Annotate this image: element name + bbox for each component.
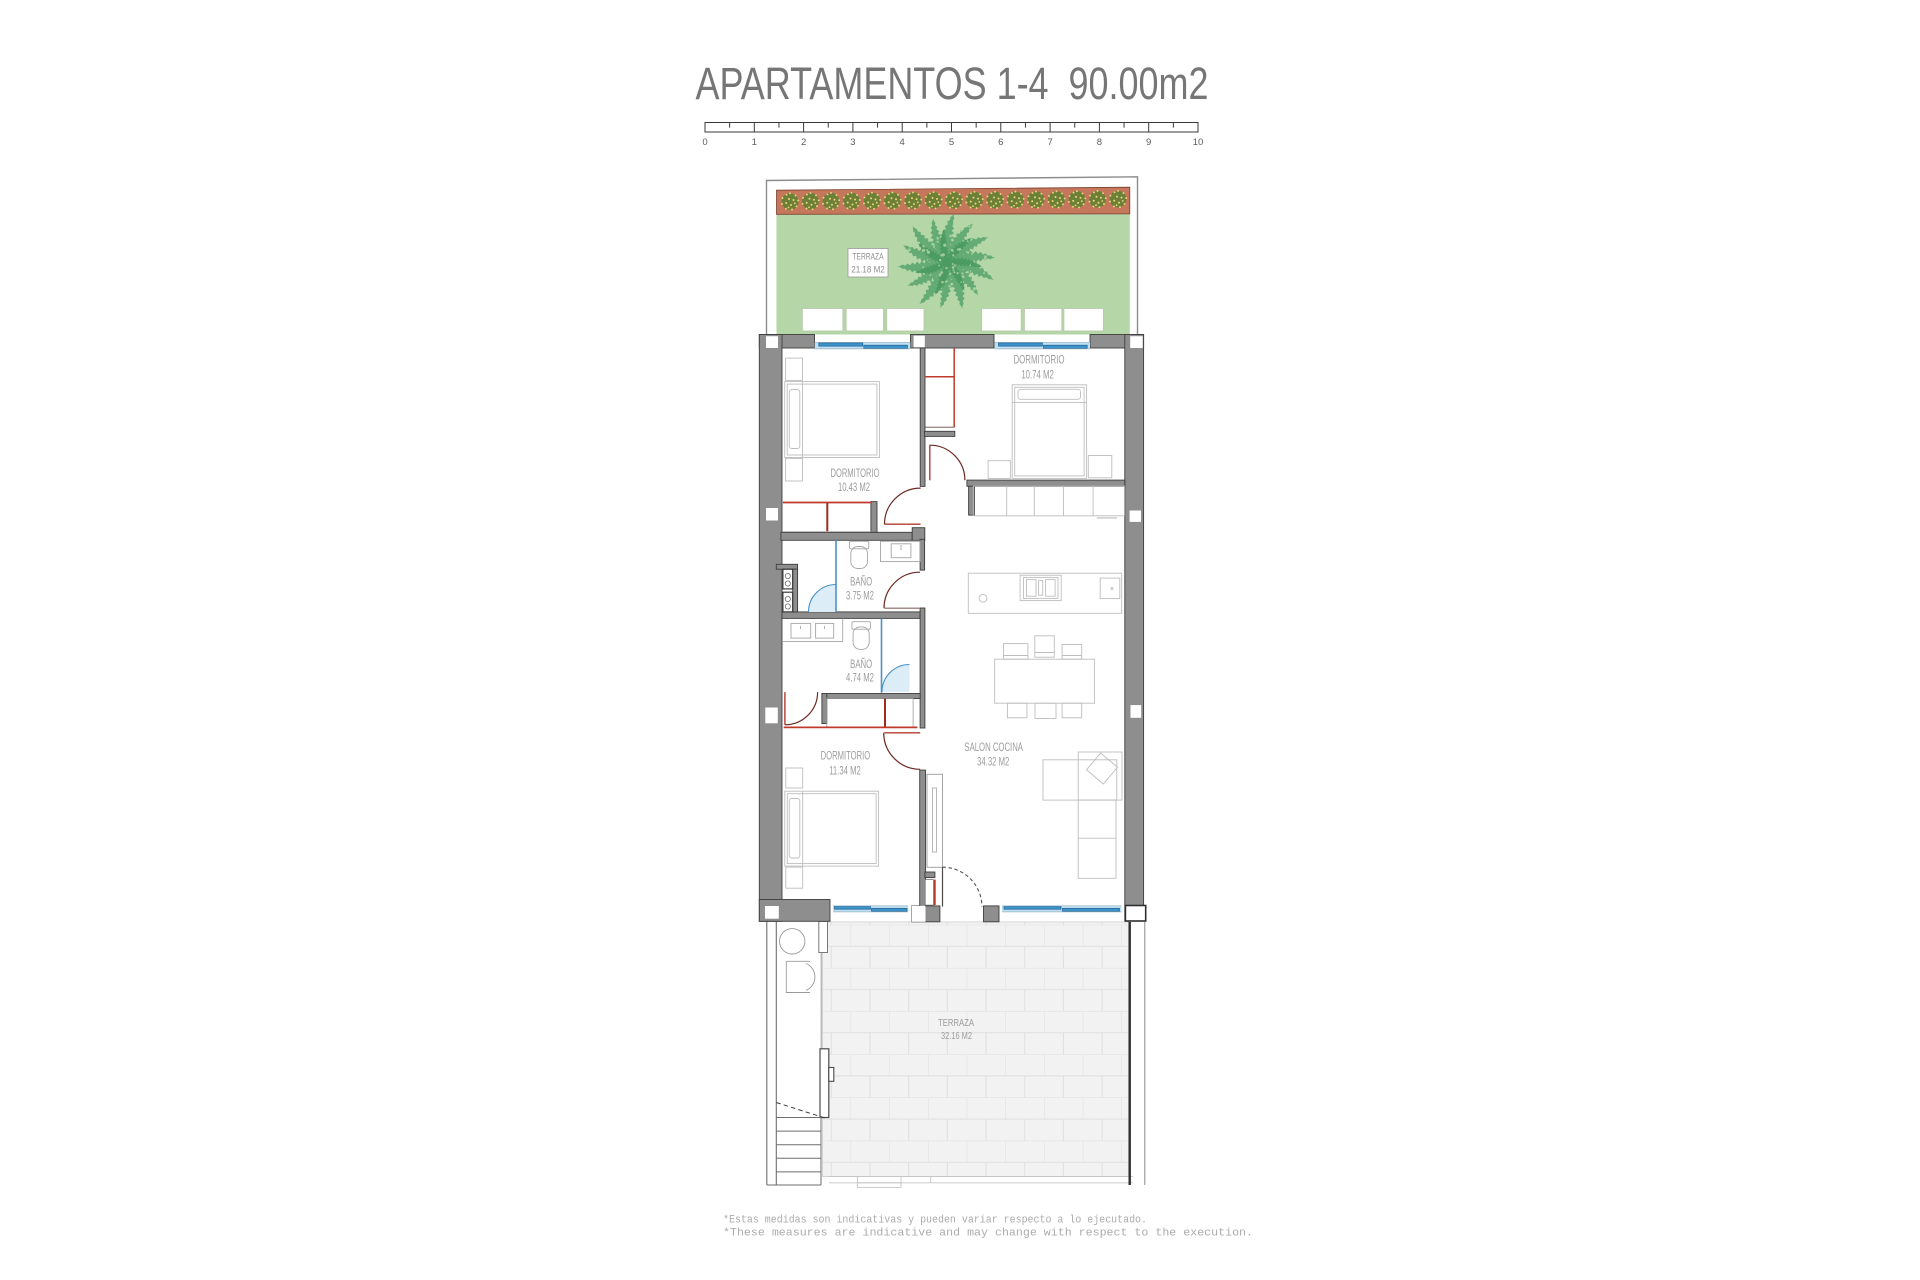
svg-text:SALON COCINA: SALON COCINA (964, 742, 1023, 754)
svg-text:9: 9 (1146, 137, 1151, 148)
svg-text:7: 7 (1047, 137, 1052, 148)
svg-text:3: 3 (850, 137, 855, 148)
svg-text:*These measures are indicative: *These measures are indicative and may c… (723, 1228, 1253, 1240)
svg-text:4.74 M2: 4.74 M2 (846, 673, 874, 685)
svg-text:3.75 M2: 3.75 M2 (846, 591, 874, 603)
svg-text:21.18 M2: 21.18 M2 (851, 265, 885, 276)
svg-text:1: 1 (752, 137, 757, 148)
svg-text:34.32 M2: 34.32 M2 (977, 757, 1009, 769)
svg-text:6: 6 (998, 137, 1003, 148)
svg-text:DORMITORIO: DORMITORIO (831, 468, 880, 480)
svg-text:8: 8 (1097, 137, 1102, 148)
svg-text:4: 4 (900, 137, 905, 148)
svg-text:0: 0 (702, 137, 707, 148)
svg-text:5: 5 (949, 137, 954, 148)
svg-text:BAÑO: BAÑO (850, 658, 872, 671)
svg-text:11.34 M2: 11.34 M2 (829, 766, 861, 778)
svg-text:*Estas medidas son indicativas: *Estas medidas son indicativas y pueden … (723, 1215, 1147, 1227)
svg-text:DORMITORIO: DORMITORIO (1014, 355, 1065, 367)
svg-text:2: 2 (801, 137, 806, 148)
svg-text:10.43 M2: 10.43 M2 (838, 482, 870, 494)
svg-text:TERRAZA: TERRAZA (938, 1017, 974, 1029)
svg-text:DORMITORIO: DORMITORIO (821, 751, 871, 763)
svg-text:10: 10 (1193, 137, 1204, 148)
svg-text:TERRAZA: TERRAZA (853, 252, 884, 263)
svg-text:32.16 M2: 32.16 M2 (941, 1030, 972, 1042)
svg-text:APARTAMENTOS 1-4 90.00m2: APARTAMENTOS 1-4 90.00m2 (696, 58, 1209, 109)
svg-text:BAÑO: BAÑO (850, 576, 872, 589)
svg-text:10.74 M2: 10.74 M2 (1021, 370, 1054, 382)
